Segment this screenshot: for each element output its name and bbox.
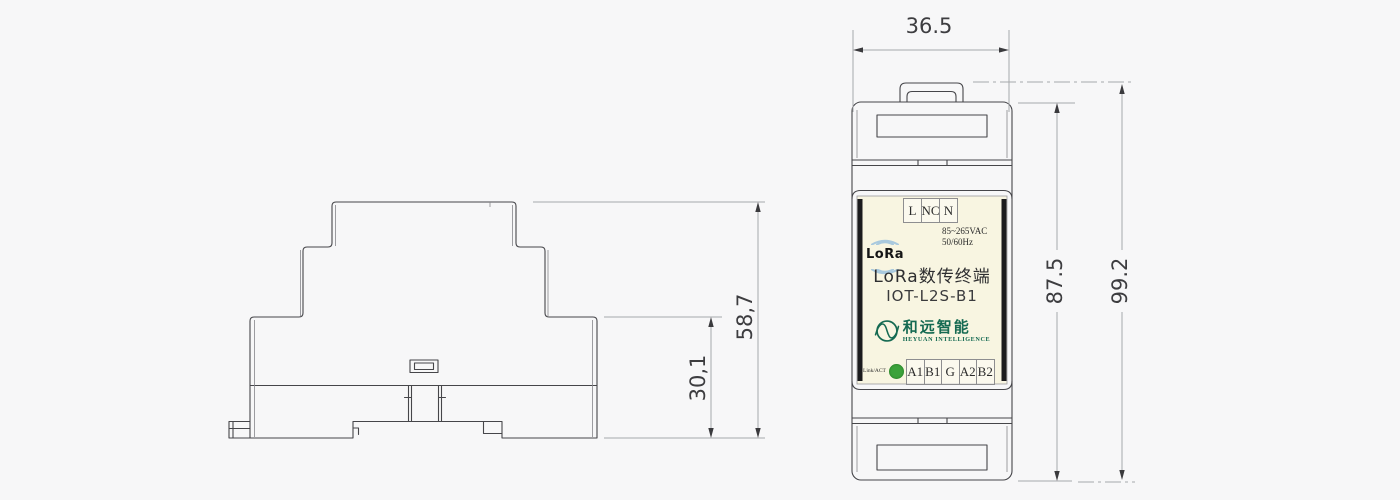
dim-front-99-2: 99.2 xyxy=(1108,221,1132,341)
frequency-rating: 50/60Hz xyxy=(942,237,987,248)
brand-text: 和远智能 HEYUAN INTELLIGENCE xyxy=(903,319,991,343)
link-act-led xyxy=(889,364,904,379)
product-model: IOT-L2S-B1 xyxy=(862,287,1002,305)
brand-block: 和远智能 HEYUAN INTELLIGENCE xyxy=(862,318,1002,344)
terminal-A1: A1 xyxy=(906,359,925,385)
side-view xyxy=(229,202,597,438)
din-release-clip xyxy=(229,422,250,439)
top-terminal-slot xyxy=(877,115,987,137)
lora-wordmark: LoRa xyxy=(866,249,904,261)
side-view-outline xyxy=(250,202,597,438)
front-width-extensions xyxy=(853,30,1009,112)
product-title: LoRa数传终端 xyxy=(862,262,1002,287)
power-rating: 85~265VAC 50/60Hz xyxy=(942,226,987,247)
heyuan-logo-icon xyxy=(874,318,900,344)
terminal-B2: B2 xyxy=(976,359,995,385)
dim-side-58-7: 58,7 xyxy=(733,262,757,372)
front-panel-label: L NC N 85~265VAC 50/60Hz LoRa LoRa数传终端 I… xyxy=(862,196,1002,384)
technical-drawing-canvas: 36.5 58,7 30,1 87.5 99.2 L NC N 85~265VA… xyxy=(0,0,1400,500)
rail-slot-hooks xyxy=(353,422,502,435)
terminal-L: L xyxy=(903,198,922,223)
top-cover-seam xyxy=(852,160,1012,166)
terminal-A2: A2 xyxy=(959,359,978,385)
dim-side-30-1: 30,1 xyxy=(686,323,710,433)
clip-window-inner xyxy=(415,363,434,370)
top-handle-inner xyxy=(907,92,956,103)
din-clip-slides xyxy=(405,386,446,422)
label-side-bar-right xyxy=(1002,199,1007,381)
brand-name-en: HEYUAN INTELLIGENCE xyxy=(903,336,991,343)
terminal-N: N xyxy=(939,198,958,223)
lora-signal-arc-top-icon xyxy=(868,238,902,245)
side-extension-lines xyxy=(533,202,765,438)
terminal-NC: NC xyxy=(921,198,940,223)
terminal-strip-bottom: A1 B1 G A2 B2 xyxy=(906,359,995,385)
bottom-terminal-slot xyxy=(877,445,987,470)
led-label: Link/ACT xyxy=(863,368,886,374)
bottom-cover-seam xyxy=(852,418,1012,424)
dim-front-87-5: 87.5 xyxy=(1043,221,1067,341)
dim-width-36-5: 36.5 xyxy=(889,14,969,38)
side-view-inner-edges xyxy=(255,202,593,437)
brand-name-cn: 和远智能 xyxy=(903,319,991,335)
terminal-strip-top: L NC N xyxy=(903,198,958,223)
voltage-rating: 85~265VAC xyxy=(942,226,987,237)
terminal-G: G xyxy=(941,359,960,385)
terminal-B1: B1 xyxy=(924,359,943,385)
